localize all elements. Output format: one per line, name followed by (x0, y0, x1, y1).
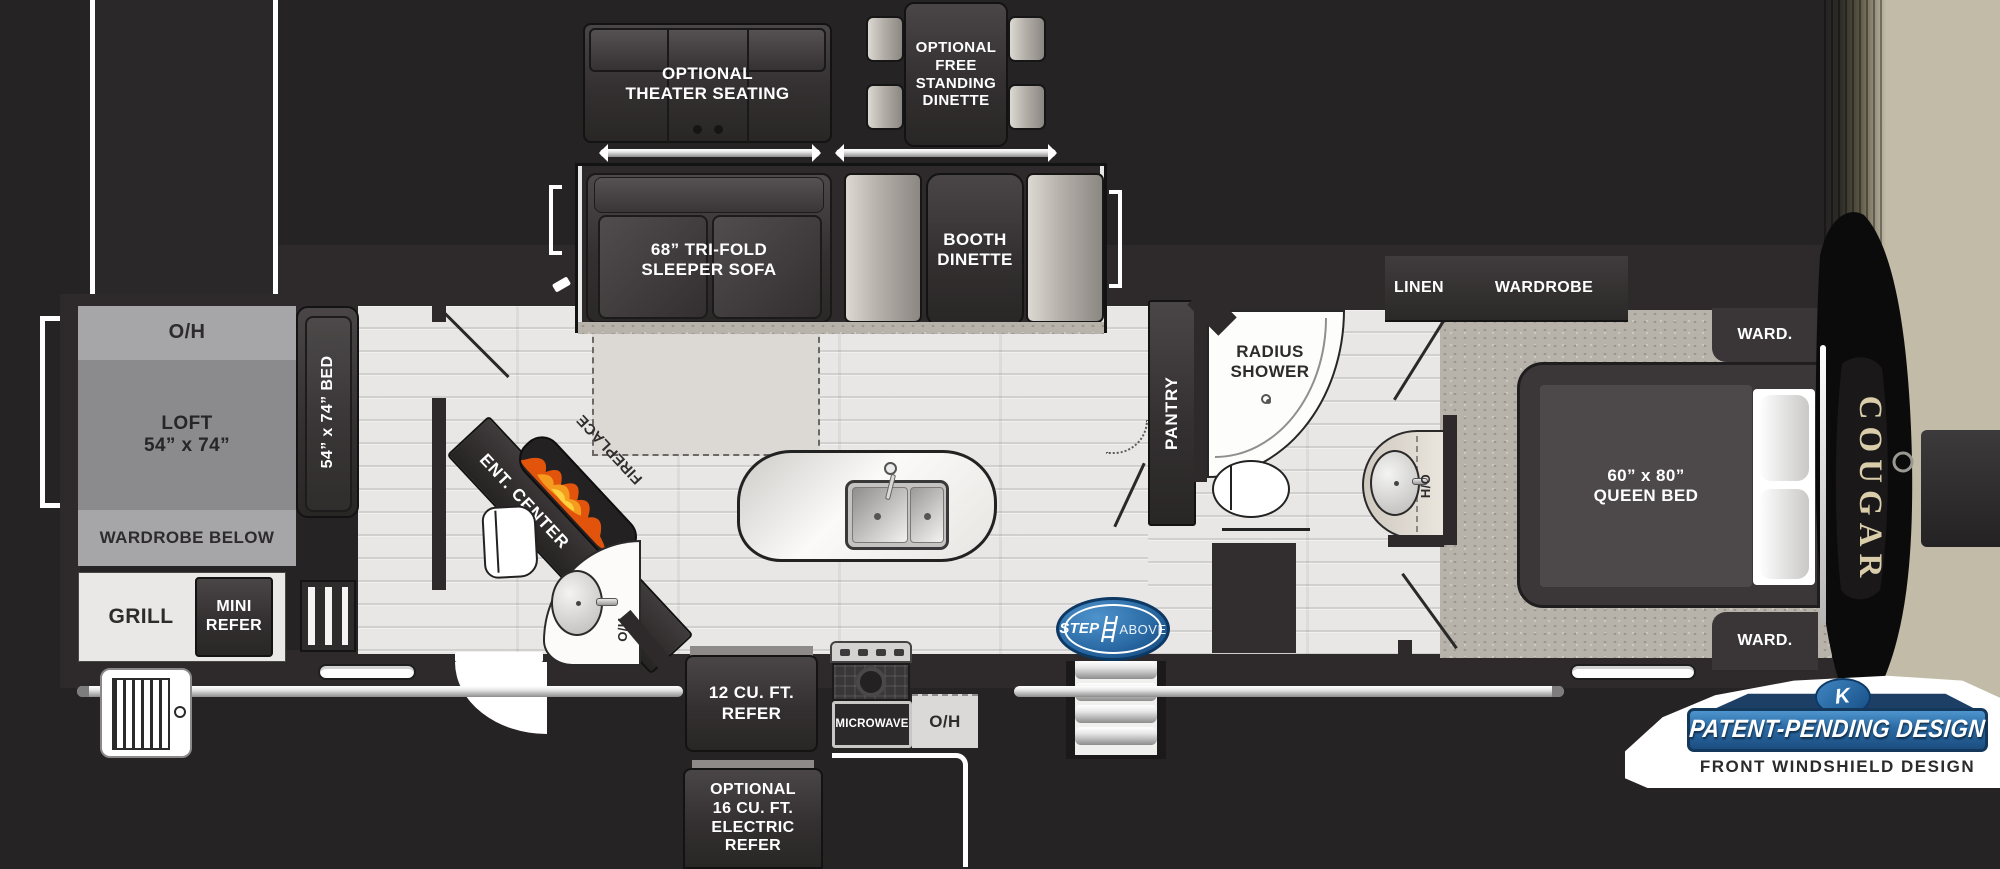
cooktop (830, 641, 912, 663)
pantry-label-wrap: PANTRY (1162, 313, 1182, 513)
optional-theater-seating: OPTIONAL THEATER SEATING (583, 23, 832, 143)
range-grate (832, 663, 910, 701)
wardrobe-label: WARDROBE (1495, 279, 1593, 298)
refrigerator-12cuft: 12 CU. FT. REFER (685, 655, 818, 752)
windshield-bar: FRONT WINDSHIELD DESIGN (1692, 752, 1983, 782)
tri-fold-sleeper-sofa: 68” TRI-FOLD SLEEPER SOFA (586, 173, 832, 323)
galley-overhead-label: O/H (929, 712, 960, 732)
optrefer-label3: ELECTRIC (711, 819, 794, 838)
floorplan-canvas: O/H LOFT 54” x 74” WARDROBE BELOW 54” x … (0, 0, 2000, 869)
shower-label2: SHOWER (1231, 362, 1310, 382)
half-bath-faucet-icon (596, 598, 618, 606)
pantry-label: PANTRY (1162, 376, 1182, 450)
dinette-chair (866, 16, 904, 62)
loft-steps (300, 580, 356, 652)
fsd-label2: FREE (935, 57, 977, 75)
bunk-bed-label-wrap: 54” x 74” BED (318, 307, 338, 517)
mini-refer-label1: MINI (216, 598, 251, 617)
island-sink (845, 480, 949, 550)
refer-label1: 12 CU. FT. (709, 683, 794, 703)
dinette-chair (866, 84, 904, 130)
grill-label: GRILL (109, 605, 174, 630)
patent-banner: PATENT-PENDING DESIGN (1687, 708, 1988, 752)
slide-arrow-bar (600, 149, 820, 157)
wardrobe-below-label: WARDROBE BELOW (100, 528, 275, 548)
slide-window-left (549, 185, 562, 255)
optional-electric-refer: OPTIONAL 16 CU. FT. ELECTRIC REFER (683, 768, 823, 869)
optrefer-label2: 16 CU. FT. (713, 800, 793, 819)
slide-window-right (1109, 190, 1122, 288)
arrow-right-icon (1048, 144, 1066, 162)
bath-cabinet (1212, 543, 1296, 653)
microwave: MICROWAVE (832, 701, 912, 748)
queen-bed-label2: QUEEN BED (1594, 486, 1699, 506)
cougar-wordmark-wrap: COUGAR (1852, 360, 1888, 620)
dinette-chair (1008, 84, 1046, 130)
griddle-knob-icon (174, 706, 186, 718)
grab-handle-left (318, 664, 416, 680)
cupholder-dot (714, 125, 723, 134)
bedroom-door-post (1398, 640, 1412, 654)
windshield-bar-label: FRONT WINDSHIELD DESIGN (1700, 757, 1975, 777)
linen-wardrobe-cabinet: LINEN WARDROBE (1385, 256, 1628, 322)
loft-label-line1: LOFT (161, 413, 212, 435)
rear-entry-door-swing (455, 662, 547, 734)
cupholder-dot (693, 125, 702, 134)
loft-area: LOFT 54” x 74” (78, 360, 296, 510)
fsd-label1: OPTIONAL (916, 39, 997, 57)
fsd-label3: STANDING (916, 75, 996, 93)
linen-label: LINEN (1394, 279, 1444, 298)
shower-drain-icon (1261, 394, 1271, 404)
island-faucet-icon (884, 462, 897, 475)
rear-room-wall (432, 398, 446, 590)
sofa-label2: SLEEPER SOFA (641, 260, 776, 280)
bath-hamper-label: H/O (1418, 474, 1433, 498)
booth-bench-right (1026, 173, 1104, 323)
sink-dot (924, 513, 931, 520)
rear-overhead-cabinet: O/H (78, 306, 296, 360)
slide-arrow-bar (836, 149, 1056, 157)
bath-wall-right (1443, 415, 1457, 545)
outdoor-griddle (100, 668, 192, 758)
slide-rail-highlight (1820, 345, 1826, 625)
ward-top-label: WARD. (1737, 326, 1792, 345)
arrow-left-icon (590, 144, 608, 162)
booth-label1: BOOTH (943, 230, 1006, 250)
rear-wall-window (90, 0, 278, 304)
bunk-bed-label: 54” x 74” BED (319, 356, 338, 469)
refer-label2: REFER (722, 704, 782, 724)
cougar-wordmark: COUGAR (1852, 396, 1889, 585)
bath-wall-stub (1388, 535, 1444, 547)
counter-strip (692, 760, 814, 768)
hitch-pin-box (1921, 430, 2000, 547)
ward-bottom-label: WARD. (1737, 632, 1792, 651)
entry-door-swing (832, 753, 968, 867)
burner-icon (856, 667, 886, 697)
shower-label1: RADIUS (1236, 342, 1304, 362)
rear-overhead-label: O/H (169, 321, 206, 345)
queen-bed-label1: 60” x 80” (1607, 466, 1684, 486)
mini-refer-label2: REFER (206, 617, 262, 636)
galley-overhead-cabinet: O/H (912, 694, 978, 748)
optional-free-standing-dinette: OPTIONAL FREE STANDING DINETTE (904, 2, 1008, 147)
grab-handle-right (1570, 664, 1696, 680)
half-bath-toilet (481, 505, 539, 580)
rear-entry-threshold (455, 652, 543, 662)
wall-left (60, 294, 80, 668)
optrefer-label4: REFER (725, 837, 781, 856)
bath-toilet (1212, 460, 1290, 518)
dinette-chair (1008, 16, 1046, 62)
microwave-label: MICROWAVE (835, 718, 908, 732)
patent-banner-label: PATENT-PENDING DESIGN (1688, 715, 1986, 745)
wall-top-left (278, 245, 580, 313)
queen-bed: 60” x 80” QUEEN BED (1517, 362, 1820, 608)
booth-bench-left (844, 173, 922, 323)
keystone-k: K (1834, 684, 1852, 709)
sink-dot (874, 513, 881, 520)
sofa-label1: 68” TRI-FOLD (651, 240, 767, 260)
booth-dinette-table: BOOTH DINETTE (926, 173, 1024, 327)
theater-label2: THEATER SEATING (625, 84, 789, 104)
awning-rail-right (1014, 686, 1564, 697)
loft-label-line2: 54” x 74” (144, 435, 230, 457)
theater-label1: OPTIONAL (662, 64, 753, 84)
booth-label2: DINETTE (937, 250, 1013, 270)
optrefer-label1: OPTIONAL (710, 781, 796, 800)
bath-wall-left (1194, 310, 1207, 482)
slide-floor-trim (578, 322, 1104, 334)
living-slideout: 68” TRI-FOLD SLEEPER SOFA BOOTH DINETTE (575, 163, 1107, 333)
entry-steps (1066, 661, 1166, 759)
arrow-left-icon (826, 144, 844, 162)
fsd-label4: DINETTE (923, 92, 990, 110)
wardrobe-below-cabinet: WARDROBE BELOW (78, 510, 296, 566)
bath-hamper-label-wrap: H/O (1418, 464, 1434, 508)
mini-refer: MINI REFER (195, 577, 273, 657)
bath-wall-line (1222, 528, 1310, 531)
stepabove-logo: STEP ABOVE (1056, 597, 1170, 661)
